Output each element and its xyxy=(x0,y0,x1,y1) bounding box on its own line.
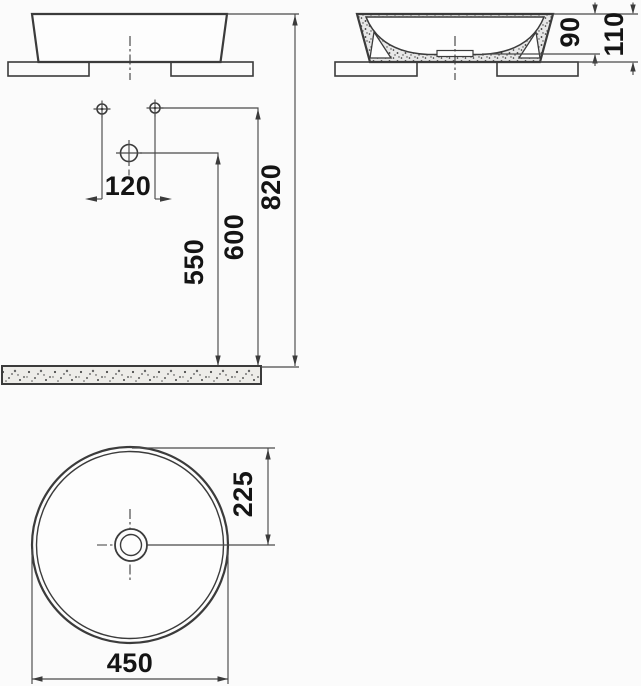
countertop-section-right xyxy=(171,62,253,76)
countertop-section-left-side xyxy=(335,62,417,76)
countertop-section-right-side xyxy=(497,62,578,76)
supply-hole-left xyxy=(94,101,111,118)
dimension-supply-height: 600 xyxy=(160,108,261,366)
dim-label-bowl-depth: 90 xyxy=(555,16,585,47)
dim-label-basin-diameter: 450 xyxy=(107,648,154,678)
dimension-drain-height: 550 xyxy=(140,153,221,366)
drain-hole-plan xyxy=(115,529,147,561)
countertop-section-left xyxy=(8,62,89,76)
top-plan-view: 225 450 xyxy=(32,447,275,684)
washbasin-dimension-drawing: 120 550 600 820 xyxy=(0,0,641,686)
dim-label-basin-height: 110 xyxy=(599,11,629,56)
technical-drawing-sheet: 120 550 600 820 xyxy=(0,0,641,686)
front-elevation-view: 120 550 600 820 xyxy=(2,14,299,384)
dim-label-drain-height: 550 xyxy=(179,239,209,286)
dim-label-supply-height: 600 xyxy=(219,214,249,261)
floor-section xyxy=(2,366,299,384)
dim-label-hole-spacing: 120 xyxy=(105,171,152,201)
dimension-rim-height: 820 xyxy=(227,14,299,366)
dim-label-center-offset: 225 xyxy=(228,471,258,518)
side-section-view: 90 110 xyxy=(335,3,638,81)
dim-label-rim-height: 820 xyxy=(256,164,286,211)
